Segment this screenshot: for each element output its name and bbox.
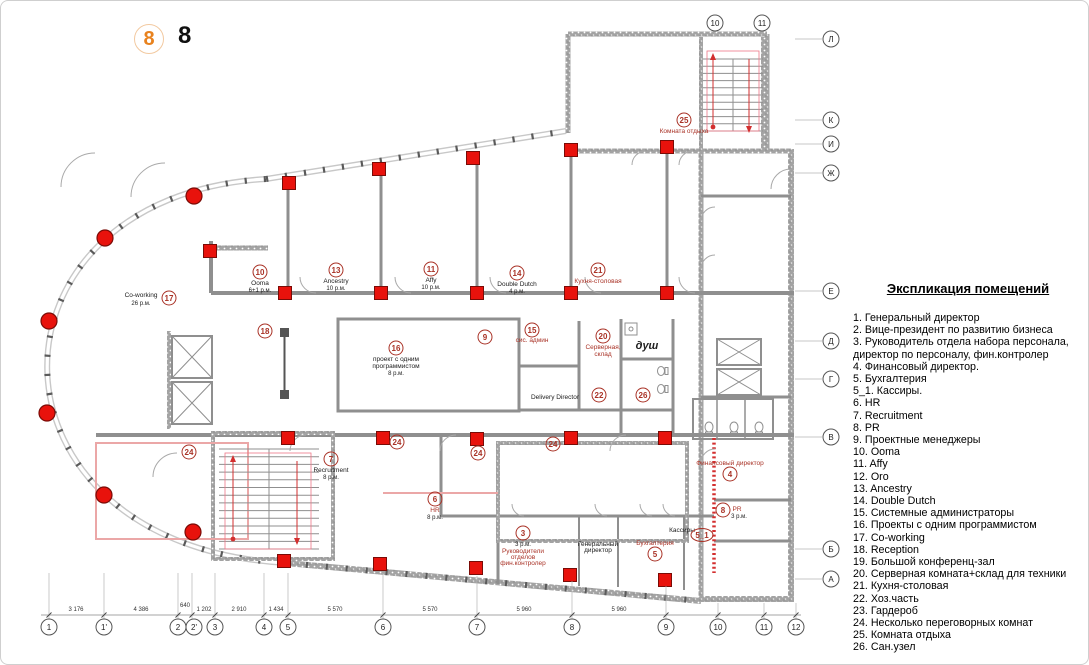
room-label-general-director: Генеральный директор [578, 540, 619, 554]
grid-axis-label: Д [828, 337, 834, 346]
room-number: 3 [521, 529, 526, 538]
legend-item: 15. Системные администраторы [853, 507, 1083, 519]
interior-walls [96, 149, 794, 590]
grid-axis-label: 3 [213, 623, 218, 632]
room-capacity: 6+1 р.м. [249, 288, 272, 294]
room-number: 21 [594, 266, 603, 275]
legend-item: 12. Oro [853, 471, 1083, 483]
room-label-sysadmin: 15 сис. админ [516, 323, 549, 344]
room-name: душ [636, 340, 659, 352]
room-label-kitchen: 21 Кухня-столовая [574, 263, 622, 285]
room-name: Бухгалтерия [636, 540, 674, 547]
grid-axis-label: 9 [664, 623, 669, 632]
stairwell-top-right [703, 51, 763, 133]
stairwell-left [219, 449, 319, 549]
room-capacity: 8 р.м. [388, 371, 404, 377]
room-number: 8 [721, 506, 726, 515]
room-number: 16 [392, 344, 401, 353]
room-capacity: 10 р.м. [326, 286, 345, 292]
room-number: 7 [329, 455, 334, 464]
room-label-double-dutch: 14 Double Dutch 4 р.м. [497, 266, 537, 295]
room-label-project-managers: 9 [478, 330, 492, 344]
legend-item: 22. Хоз.часть [853, 593, 1083, 605]
room-name: HR [430, 507, 440, 514]
legend-item: 11. Affy [853, 458, 1083, 470]
room-number: 25 [680, 116, 689, 125]
room-number: 24 [549, 440, 558, 449]
legend-item: 26. Сан.узел [853, 641, 1083, 653]
legend-item: 1. Генеральный директор [853, 312, 1083, 324]
grid-axis-label: 1 [47, 623, 52, 632]
legend-item: 2. Вице-президент по развитию бизнеса [853, 324, 1083, 336]
dimension-labels: 3 176 4 386 640 1 202 2 910 1 434 5 570 … [68, 603, 627, 613]
room-capacity: 3 р.м. [731, 514, 747, 520]
legend-item: 25. Комната отдыха [853, 629, 1083, 641]
room-name: директор [584, 547, 612, 554]
dim-label: 4 386 [133, 607, 149, 613]
grid-axis-label: 2' [191, 623, 197, 632]
room-number: 4 [728, 470, 733, 479]
grid-axis-label: 7 [475, 623, 480, 632]
stair-guide-line [225, 453, 311, 549]
room-number: 24 [474, 449, 483, 458]
shower-tray [625, 323, 637, 335]
grid-axis-label: Ж [827, 169, 835, 178]
legend-item: 7. Recruitment [853, 410, 1083, 422]
room-number: 11 [427, 265, 436, 274]
dim-label: 1 202 [196, 607, 212, 613]
dim-label: 1 434 [268, 607, 284, 613]
room-name: Recruitment [313, 467, 348, 474]
room-capacity: 8 р.м. [323, 475, 339, 481]
grid-axis-label: 11 [760, 623, 769, 632]
new-partition-walls [96, 438, 714, 573]
grid-bubbles-bottom: 1 1' 2 2' 3 4 5 6 7 8 9 10 11 12 [41, 619, 804, 635]
dim-label: 5 960 [516, 607, 532, 613]
grid-axis-label: А [828, 575, 834, 584]
grid-axis-label: И [828, 140, 834, 149]
room-label-coworking: 17 Co-working 26 р.м. [125, 291, 176, 307]
room-name: проект с одним [373, 356, 420, 363]
room-label-utility: 22 [592, 388, 606, 402]
grid-axis-label: 6 [381, 623, 386, 632]
legend-item: 14. Double Dutch [853, 495, 1083, 507]
room-label-single-programmer: 16 проект с одним программистом 8 р.м. [372, 341, 420, 377]
grid-axis-label: Г [829, 375, 834, 384]
grid-axis-label: Л [828, 35, 833, 44]
room-name: Комната отдыха [660, 128, 709, 135]
room-name: Серверная, [585, 344, 620, 351]
grid-bubbles-top: 10 11 [707, 15, 770, 31]
legend-item: 18. Reception [853, 544, 1083, 556]
grid-axis-label: 8 [570, 623, 575, 632]
room-name: Co-working [125, 292, 158, 299]
room-number: 22 [595, 391, 604, 400]
dim-label: 5 960 [611, 607, 627, 613]
room-capacity: 4 р.м. [509, 289, 525, 295]
column-dots [39, 188, 202, 540]
room-number: 6 [433, 495, 438, 504]
room-number: 26 [639, 391, 648, 400]
room-label-ooma: 10 Ooma 6+1 р.м. [249, 265, 272, 294]
room-label-shower: душ [636, 340, 659, 352]
dim-label: 5 570 [422, 607, 438, 613]
room-name: Финансовый директор [696, 459, 764, 467]
room-name: Delivery Director [531, 394, 580, 401]
room-name: Кухня-столовая [574, 278, 622, 285]
room-label-meeting-c: 24 [471, 446, 485, 460]
legend-item: 20. Серверная комната+склад для техники [853, 568, 1083, 580]
room-number: 5 [653, 550, 658, 559]
grid-axis-label: В [828, 433, 833, 442]
grid-axis-label: 2 [176, 623, 181, 632]
room-name: Double Dutch [497, 281, 537, 288]
grid-axis-label: 11 [758, 19, 767, 28]
legend-item: 13. Ancestry [853, 483, 1083, 495]
legend-item: 4. Финансовый директор. [853, 361, 1083, 373]
room-number: 14 [513, 269, 522, 278]
grid-axis-label: 10 [711, 19, 720, 28]
legend-item: 21. Кухня-столовая [853, 580, 1083, 592]
grid-axis-label: К [829, 116, 834, 125]
room-label-accounting: Бухгалтерия 5 [636, 540, 674, 561]
legend-item: 3. Руководитель отдела набора персонала,… [853, 336, 1083, 360]
room-capacity: 8 р.м. [427, 515, 443, 521]
room-capacity: 26 р.м. [131, 301, 150, 307]
dim-label: 5 570 [327, 607, 343, 613]
grid-axis-label: 1' [101, 623, 107, 632]
room-name: сис. админ [516, 337, 549, 344]
room-label-finance-director: Финансовый директор 4 [696, 459, 764, 481]
legend-item: 5. Бухгалтерия [853, 373, 1083, 385]
room-number: 24 [185, 448, 194, 457]
room-label-wc: 26 [636, 388, 650, 402]
legend-item: 23. Гардероб [853, 605, 1083, 617]
legend-item: 24. Несколько переговорных комнат [853, 617, 1083, 629]
room-number: 15 [528, 326, 537, 335]
room-number: 24 [393, 438, 402, 447]
legend-item: 19. Большой конференц-зал [853, 556, 1083, 568]
grid-axis-label: 10 [714, 623, 723, 632]
dim-label: 2 910 [231, 607, 247, 613]
legend-item: 5_1. Кассиры. [853, 385, 1083, 397]
room-legend: Экспликация помещений 1. Генеральный дир… [853, 281, 1083, 654]
room-number: 20 [599, 332, 608, 341]
room-name: Ancestry [323, 278, 349, 285]
room-name: PR [732, 506, 741, 513]
legend-item: 10. Ooma [853, 446, 1083, 458]
reception-desk [280, 328, 289, 399]
room-name: Affy [425, 277, 437, 284]
room-number: 9 [483, 333, 488, 342]
legend-item: 6. HR [853, 397, 1083, 409]
room-number: 5_1 [695, 531, 709, 540]
room-capacity: 10 р.м. [421, 285, 440, 291]
floor-plan-sheet: 8 8 [0, 0, 1089, 665]
grid-axis-label: 4 [262, 623, 267, 632]
room-name: склад [594, 351, 612, 358]
room-number: 17 [165, 294, 174, 303]
curtain-wall-facade [47, 131, 566, 563]
legend-item: 8. PR [853, 422, 1083, 434]
grid-axis-label: Е [828, 287, 833, 296]
room-label-meeting-b: 24 [390, 435, 404, 449]
floor-plan-drawing: 3 176 4 386 640 1 202 2 910 1 434 5 570 … [1, 1, 846, 665]
room-label-meeting-a: 24 [182, 445, 196, 459]
room-label-dept-heads: 3 3 р.м. Руководители отделов фин.контро… [500, 526, 546, 567]
legend-item: 9. Проектные менеджеры [853, 434, 1083, 446]
legend-item: 17. Co-working [853, 532, 1083, 544]
legend-title: Экспликация помещений [853, 281, 1083, 296]
room-label-delivery-director: Delivery Director [531, 394, 580, 401]
dim-label: 3 176 [68, 607, 84, 613]
grid-axis-label: 5 [286, 623, 291, 632]
grid-axis-label: Б [828, 545, 833, 554]
room-number: 13 [332, 266, 341, 275]
dim-label: 640 [180, 603, 191, 609]
room-label-pr: 8 PR 3 р.м. [716, 503, 747, 520]
legend-item: 16. Проекты с одним программистом [853, 519, 1083, 531]
room-number: 10 [256, 268, 265, 277]
grid-bubbles-right: Л К И Ж Е Д Г В Б А [823, 31, 839, 587]
room-label-server-room: 20 Серверная, склад [585, 329, 620, 358]
room-name: программистом [372, 363, 420, 370]
room-label-affy: 11 Affy 10 р.м. [421, 262, 440, 291]
room-number: 18 [261, 327, 270, 336]
room-name: фин.контролер [500, 560, 546, 567]
grid-axis-label: 12 [792, 623, 801, 632]
room-label-reception: 18 [258, 324, 272, 338]
room-label-ancestry: 13 Ancestry 10 р.м. [323, 263, 349, 292]
room-name: Ooma [251, 280, 269, 287]
